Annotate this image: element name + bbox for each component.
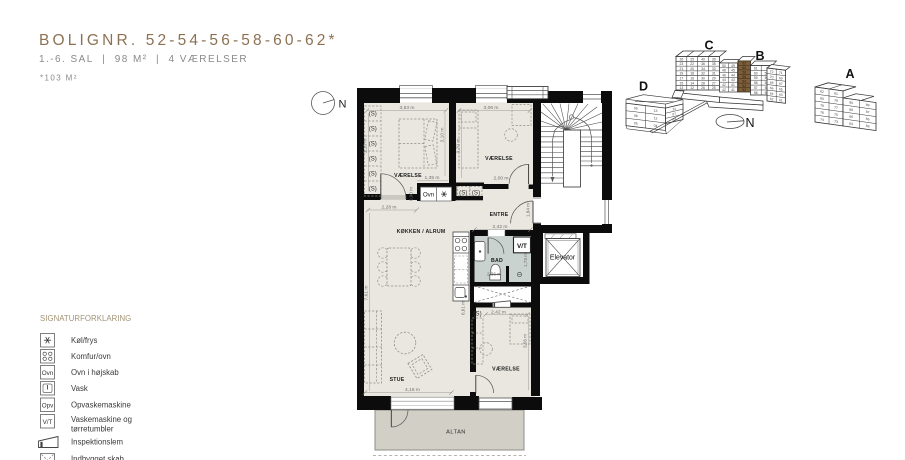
svg-text:05: 05 xyxy=(634,121,638,125)
svg-text:19: 19 xyxy=(680,72,684,76)
svg-text:80: 80 xyxy=(820,97,824,102)
svg-text:56: 56 xyxy=(754,91,758,95)
svg-text:78: 78 xyxy=(820,104,824,109)
svg-text:11: 11 xyxy=(672,107,676,112)
svg-text:6,61 m: 6,61 m xyxy=(460,301,465,315)
svg-text:16: 16 xyxy=(690,77,694,81)
svg-text:3,70 m: 3,70 m xyxy=(456,139,462,154)
svg-text:(S): (S) xyxy=(369,142,377,148)
svg-text:54: 54 xyxy=(742,79,746,83)
svg-text:ALTAN: ALTAN xyxy=(446,430,466,436)
svg-text:68: 68 xyxy=(770,81,774,85)
svg-text:61: 61 xyxy=(754,66,758,70)
svg-text:KØKKEN / ALRUM: KØKKEN / ALRUM xyxy=(397,229,446,235)
svg-text:0,90 m: 0,90 m xyxy=(409,187,414,201)
svg-text:(S): (S) xyxy=(369,112,377,118)
svg-text:31: 31 xyxy=(712,72,716,76)
svg-text:41: 41 xyxy=(731,88,735,92)
svg-text:75: 75 xyxy=(834,113,838,118)
svg-text:45: 45 xyxy=(731,69,735,73)
svg-text:4,16 m: 4,16 m xyxy=(405,387,420,393)
svg-text:18: 18 xyxy=(690,72,694,76)
svg-text:81: 81 xyxy=(834,92,838,97)
svg-text:65: 65 xyxy=(779,87,783,91)
svg-text:1,84 m: 1,84 m xyxy=(526,203,531,217)
svg-text:88: 88 xyxy=(849,108,853,113)
svg-text:26: 26 xyxy=(701,86,705,90)
svg-text:87: 87 xyxy=(866,110,870,115)
svg-text:34: 34 xyxy=(701,67,705,71)
svg-text:Ovn i højskab: Ovn i højskab xyxy=(71,368,119,377)
svg-text:28: 28 xyxy=(701,81,705,85)
svg-text:N: N xyxy=(745,116,754,130)
svg-text:76: 76 xyxy=(820,111,824,116)
svg-text:25: 25 xyxy=(712,86,716,90)
svg-text:84: 84 xyxy=(849,122,853,127)
svg-text:Elevator: Elevator xyxy=(550,255,576,262)
svg-text:C: C xyxy=(704,39,713,53)
svg-text:83: 83 xyxy=(866,124,870,129)
svg-text:63: 63 xyxy=(779,93,783,97)
svg-text:64: 64 xyxy=(770,92,774,96)
svg-text:60: 60 xyxy=(754,71,758,75)
svg-text:Inspektionslem: Inspektionslem xyxy=(71,438,123,447)
svg-text:14: 14 xyxy=(690,81,694,85)
svg-text:27: 27 xyxy=(712,81,716,85)
svg-text:25: 25 xyxy=(690,57,694,61)
svg-text:V/T: V/T xyxy=(517,243,527,250)
svg-text:2,28 m: 2,28 m xyxy=(382,204,397,210)
svg-text:7,61 m: 7,61 m xyxy=(364,286,370,301)
svg-text:82: 82 xyxy=(820,90,824,95)
svg-text:15: 15 xyxy=(680,81,684,85)
svg-text:59: 59 xyxy=(754,76,758,80)
svg-text:VÆRELSE: VÆRELSE xyxy=(485,156,513,162)
svg-text:Vask: Vask xyxy=(71,384,88,393)
svg-text:D: D xyxy=(639,80,648,94)
svg-text:50: 50 xyxy=(722,64,726,68)
svg-text:42: 42 xyxy=(722,88,726,92)
svg-text:20: 20 xyxy=(690,67,694,71)
svg-text:Køl/frys: Køl/frys xyxy=(71,336,98,345)
svg-text:(S): (S) xyxy=(369,187,377,193)
svg-text:86: 86 xyxy=(849,115,853,120)
svg-text:3,10 m: 3,10 m xyxy=(440,128,446,143)
svg-text:32: 32 xyxy=(701,72,705,76)
svg-text:74: 74 xyxy=(820,118,824,123)
svg-text:tørretumbler: tørretumbler xyxy=(71,425,114,434)
svg-text:30: 30 xyxy=(701,77,705,81)
svg-text:58: 58 xyxy=(754,81,758,85)
svg-text:(S): (S) xyxy=(369,127,377,133)
svg-text:52: 52 xyxy=(742,84,746,88)
svg-text:36: 36 xyxy=(701,62,705,66)
svg-text:2,36 m: 2,36 m xyxy=(487,271,501,276)
svg-text:35: 35 xyxy=(712,62,716,66)
svg-text:77: 77 xyxy=(834,106,838,111)
svg-text:79: 79 xyxy=(834,99,838,104)
svg-text:12: 12 xyxy=(654,116,658,120)
svg-text:A: A xyxy=(845,67,854,81)
svg-text:13: 13 xyxy=(654,109,658,113)
svg-text:72: 72 xyxy=(770,70,774,74)
svg-text:Vaskemaskine og: Vaskemaskine og xyxy=(71,415,132,424)
svg-text:09: 09 xyxy=(634,106,638,110)
svg-text:52: 52 xyxy=(742,88,746,92)
svg-text:39: 39 xyxy=(712,57,716,61)
svg-text:BOLIGNR. 52-54-56-58-60-62*: BOLIGNR. 52-54-56-58-60-62* xyxy=(39,32,338,49)
svg-text:1.-6. SAL | 98 M² | 4 VÆRE: 1.-6. SAL | 98 M² | 4 VÆRELSER xyxy=(39,54,248,65)
svg-text:90: 90 xyxy=(849,101,853,106)
svg-text:N: N xyxy=(339,99,347,111)
svg-text:85: 85 xyxy=(866,117,870,122)
svg-text:13: 13 xyxy=(680,86,684,90)
svg-text:(S): (S) xyxy=(459,189,467,196)
svg-text:62: 62 xyxy=(742,62,746,66)
svg-text:44: 44 xyxy=(722,78,726,82)
svg-text:2,42 m: 2,42 m xyxy=(491,309,506,315)
svg-text:Komfur/ovn: Komfur/ovn xyxy=(71,352,111,361)
svg-text:69: 69 xyxy=(779,76,783,80)
svg-text:3,53 m: 3,53 m xyxy=(400,105,415,111)
svg-text:44: 44 xyxy=(731,73,735,77)
svg-text:43: 43 xyxy=(731,78,735,82)
svg-text:VÆRELSE: VÆRELSE xyxy=(492,367,520,373)
svg-text:17: 17 xyxy=(680,77,684,81)
svg-text:89: 89 xyxy=(866,103,870,108)
svg-text:(S): (S) xyxy=(369,172,377,178)
svg-text:08: 08 xyxy=(634,114,638,118)
svg-text:61: 61 xyxy=(779,98,783,102)
svg-text:58: 58 xyxy=(742,70,746,74)
svg-text:29: 29 xyxy=(712,77,716,81)
svg-text:40: 40 xyxy=(701,57,705,61)
svg-text:42: 42 xyxy=(722,83,726,87)
svg-text:56: 56 xyxy=(742,75,746,79)
svg-text:Opvaskemaskine: Opvaskemaskine xyxy=(71,401,131,410)
svg-text:Ovn: Ovn xyxy=(42,370,54,377)
svg-text:21: 21 xyxy=(680,67,684,71)
svg-text:23: 23 xyxy=(680,62,684,66)
svg-text:67: 67 xyxy=(779,82,783,86)
svg-text:62: 62 xyxy=(770,97,774,101)
svg-text:57: 57 xyxy=(754,86,758,90)
svg-text:73: 73 xyxy=(834,120,838,125)
svg-text:26: 26 xyxy=(680,57,684,61)
svg-text:70: 70 xyxy=(770,75,774,79)
svg-text:(S): (S) xyxy=(472,189,480,196)
svg-text:V/T: V/T xyxy=(43,419,53,426)
svg-text:(S): (S) xyxy=(369,157,377,163)
svg-text:3,10 m: 3,10 m xyxy=(363,139,369,154)
svg-text:Ovn: Ovn xyxy=(423,191,435,198)
svg-text:71: 71 xyxy=(779,71,783,75)
svg-text:(S): (S) xyxy=(473,311,481,318)
svg-text:Opv: Opv xyxy=(42,403,54,410)
svg-text:ENTRE: ENTRE xyxy=(490,212,509,218)
svg-text:3,06 m: 3,06 m xyxy=(484,105,499,111)
svg-text:1,35 m: 1,35 m xyxy=(425,175,440,181)
svg-text:33: 33 xyxy=(712,67,716,71)
svg-text:41: 41 xyxy=(731,83,735,87)
svg-text:22: 22 xyxy=(690,62,694,66)
svg-text:2,42 m: 2,42 m xyxy=(493,224,508,230)
svg-text:66: 66 xyxy=(770,86,774,90)
svg-text:2,00 m: 2,00 m xyxy=(494,176,509,182)
svg-text:48: 48 xyxy=(722,69,726,73)
svg-text:12: 12 xyxy=(690,86,694,90)
svg-text:SIGNATURFORKLARING: SIGNATURFORKLARING xyxy=(40,314,131,323)
svg-text:1,73 m: 1,73 m xyxy=(523,253,528,267)
svg-text:Indbygget skab: Indbygget skab xyxy=(71,455,125,460)
svg-text:46: 46 xyxy=(722,73,726,77)
svg-text:STUE: STUE xyxy=(390,377,405,383)
svg-text:3,56 m: 3,56 m xyxy=(523,334,528,348)
svg-text:*103 M²: *103 M² xyxy=(40,74,78,83)
svg-text:VÆRELSE: VÆRELSE xyxy=(394,173,422,179)
svg-text:49: 49 xyxy=(731,64,735,68)
svg-text:60: 60 xyxy=(742,66,746,70)
svg-text:BAD: BAD xyxy=(491,258,503,264)
